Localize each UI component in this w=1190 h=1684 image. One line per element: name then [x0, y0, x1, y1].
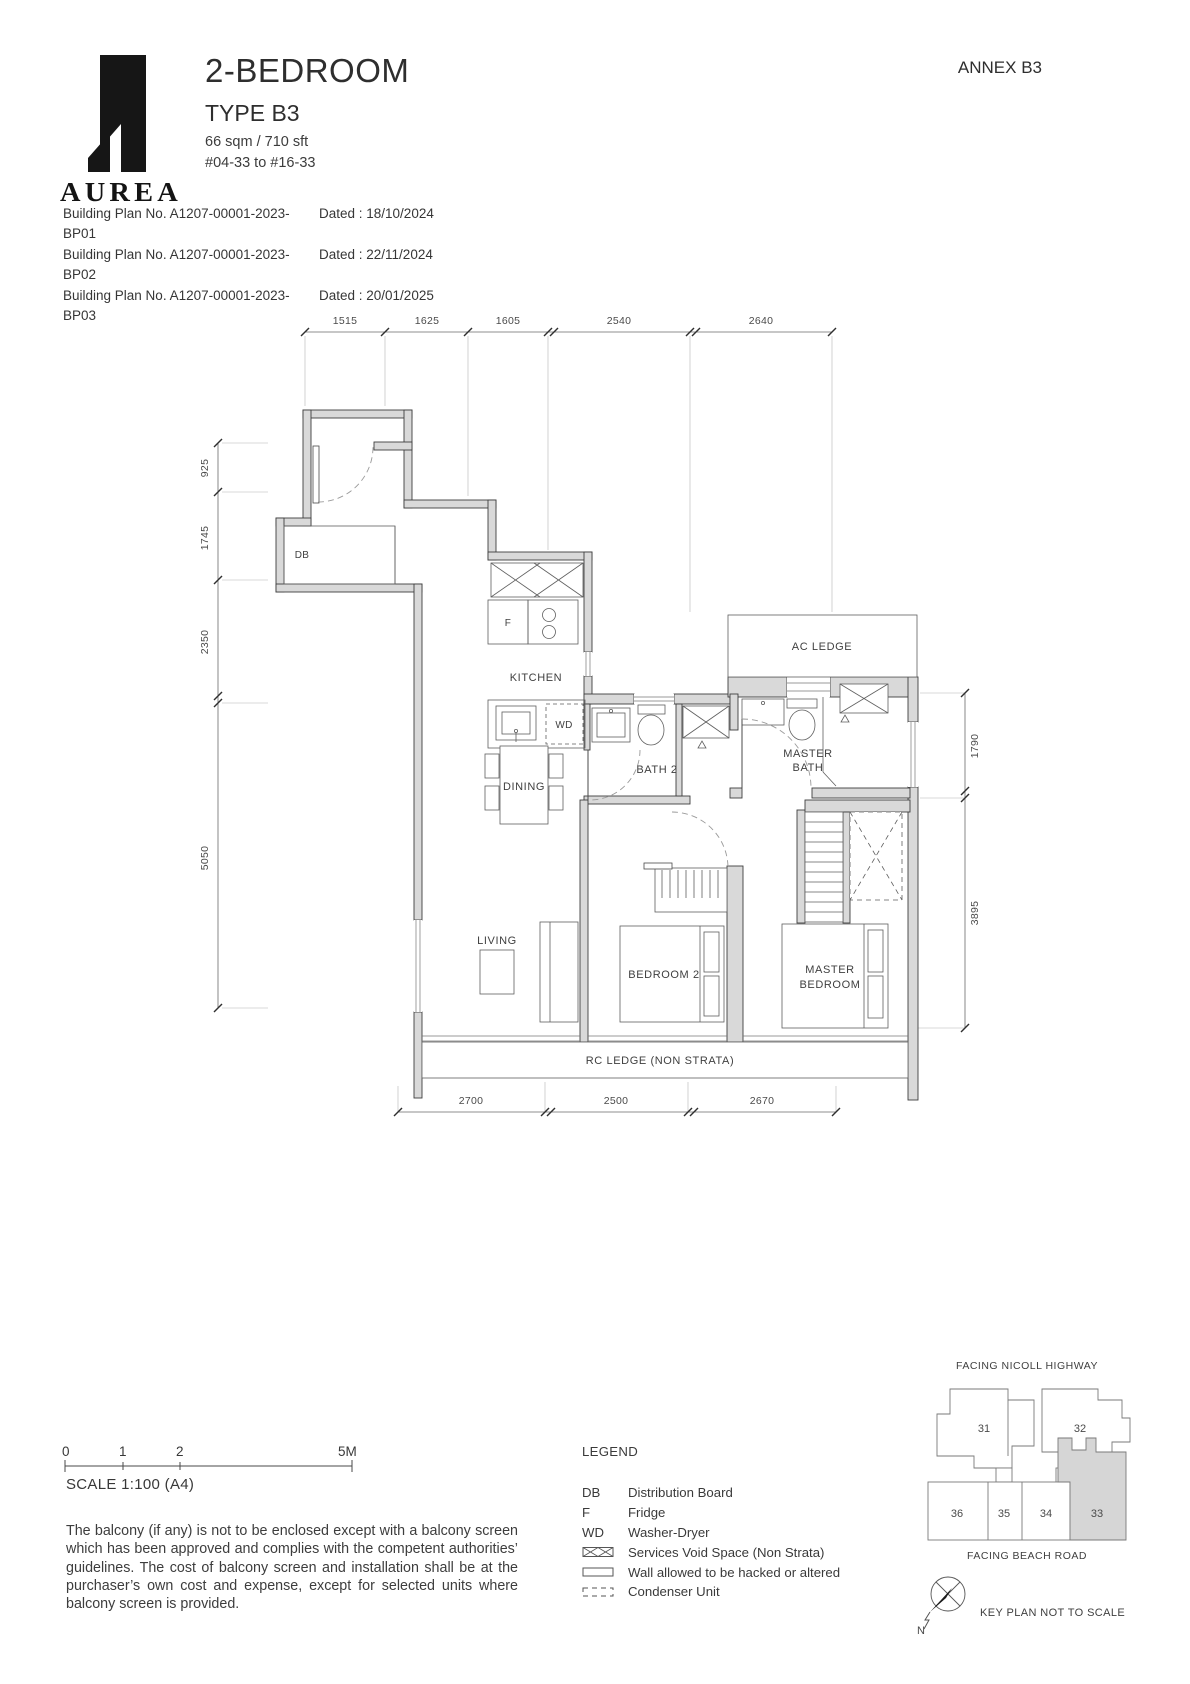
dim-top: 1625: [415, 315, 440, 327]
legend-row: Services Void Space (Non Strata): [582, 1542, 840, 1562]
dim-bottom: 2670: [750, 1095, 775, 1107]
services-void-right: [840, 684, 888, 722]
legend-label: Condenser Unit: [628, 1584, 720, 1599]
dim-left: 1745: [199, 526, 211, 551]
legend-row: Wall allowed to be hacked or altered: [582, 1562, 840, 1582]
legend-key-fridge: F: [582, 1505, 628, 1520]
dim-top: 2540: [607, 315, 632, 327]
legend-row: Condenser Unit: [582, 1582, 840, 1602]
entry-door-swing: [318, 447, 373, 502]
legend-label: Distribution Board: [628, 1485, 733, 1500]
room-label-master-bath: MASTER: [783, 748, 832, 760]
dim-left: 925: [199, 459, 211, 477]
entry-door-leaf: [313, 446, 319, 503]
legend-row: DB Distribution Board: [582, 1483, 840, 1503]
legend-key-washer-dryer: WD: [582, 1525, 628, 1540]
floor-plan-drawing: KITCHEN DINING LIVING BATH 2 MASTER BATH…: [0, 0, 1190, 1684]
key-plan-unit: 36: [951, 1508, 963, 1520]
legend: LEGEND DB Distribution Board F Fridge WD…: [582, 1444, 840, 1602]
key-plan-unit: 33: [1091, 1508, 1103, 1520]
key-plan-unit: 34: [1040, 1508, 1052, 1520]
key-plan-unit: 31: [978, 1423, 990, 1435]
room-label-dining: DINING: [503, 781, 545, 793]
label-db: DB: [295, 550, 310, 561]
bath2-fixtures: [592, 705, 665, 745]
key-plan-unit: 35: [998, 1508, 1010, 1520]
hob-burner: [543, 626, 556, 639]
hackable-wall-icon: [582, 1566, 628, 1578]
scale-tick: 5M: [338, 1444, 357, 1459]
bedroom2-wardrobe: [655, 868, 727, 912]
key-plan-note: KEY PLAN NOT TO SCALE: [980, 1607, 1125, 1619]
balcony-disclaimer: The balcony (if any) is not to be enclos…: [66, 1522, 518, 1613]
label-rc-ledge: RC LEDGE (NON STRATA): [586, 1055, 734, 1067]
north-label: N: [917, 1625, 925, 1637]
room-label-kitchen: KITCHEN: [510, 672, 562, 684]
master-wardrobe: [805, 812, 843, 922]
dim-right: 3895: [969, 901, 981, 926]
dim-bottom: 2700: [459, 1095, 484, 1107]
key-plan-unit: 32: [1074, 1423, 1086, 1435]
scale-tick: 0: [62, 1444, 70, 1459]
key-plan-facing-bottom: FACING BEACH ROAD: [967, 1550, 1087, 1562]
scale-tick: 1: [119, 1444, 127, 1459]
key-plan: FACING NICOLL HIGHWAY 31 32 36 35 34 33 …: [928, 1360, 1130, 1562]
dim-top: 1605: [496, 315, 521, 327]
room-label-bedroom2: BEDROOM 2: [628, 969, 699, 981]
legend-key-db: DB: [582, 1485, 628, 1500]
legend-row: WD Washer-Dryer: [582, 1523, 840, 1543]
bath2-door-swing: [590, 750, 640, 800]
room-label-master-bedroom: MASTER: [805, 964, 854, 976]
room-label-bath2: BATH 2: [636, 764, 677, 776]
label-washer-dryer: WD: [555, 720, 572, 731]
legend-label: Services Void Space (Non Strata): [628, 1545, 824, 1560]
floor-plan-page: { "header": { "brand": "AUREA", "title":…: [0, 0, 1190, 1684]
north-arrow-icon: N KEY PLAN NOT TO SCALE: [917, 1577, 1125, 1637]
dim-left: 2350: [199, 630, 211, 655]
hob-burner: [543, 609, 556, 622]
condenser-unit: [850, 812, 902, 900]
legend-title: LEGEND: [582, 1444, 840, 1459]
dim-bottom: 2500: [604, 1095, 629, 1107]
dim-right: 1790: [969, 734, 981, 759]
services-void-baths: [683, 706, 729, 748]
dim-top: 1515: [333, 315, 358, 327]
scale-tick: 2: [176, 1444, 184, 1459]
master-bed: [782, 924, 888, 1028]
key-plan-facing-top: FACING NICOLL HIGHWAY: [956, 1360, 1098, 1372]
label-ac-ledge: AC LEDGE: [792, 641, 852, 653]
room-label-master-bedroom: BEDROOM: [799, 979, 860, 991]
dim-left: 5050: [199, 846, 211, 871]
scale-bar: 0 1 2 5M SCALE 1:100 (A4): [62, 1444, 357, 1493]
services-void-kitchen: [491, 563, 583, 597]
services-void-icon: [582, 1546, 628, 1558]
legend-row: F Fridge: [582, 1503, 840, 1523]
bedroom-door-swing: [672, 812, 728, 868]
dim-top: 2640: [749, 315, 774, 327]
legend-label: Wall allowed to be hacked or altered: [628, 1565, 840, 1580]
bedroom-door-leaf: [644, 863, 672, 869]
legend-label: Washer-Dryer: [628, 1525, 710, 1540]
room-label-living: LIVING: [477, 935, 517, 947]
condenser-unit-icon: [582, 1586, 628, 1598]
scale-label: SCALE 1:100 (A4): [66, 1476, 194, 1493]
room-label-master-bath: BATH: [793, 762, 824, 774]
label-fridge: F: [505, 618, 511, 629]
legend-label: Fridge: [628, 1505, 665, 1520]
